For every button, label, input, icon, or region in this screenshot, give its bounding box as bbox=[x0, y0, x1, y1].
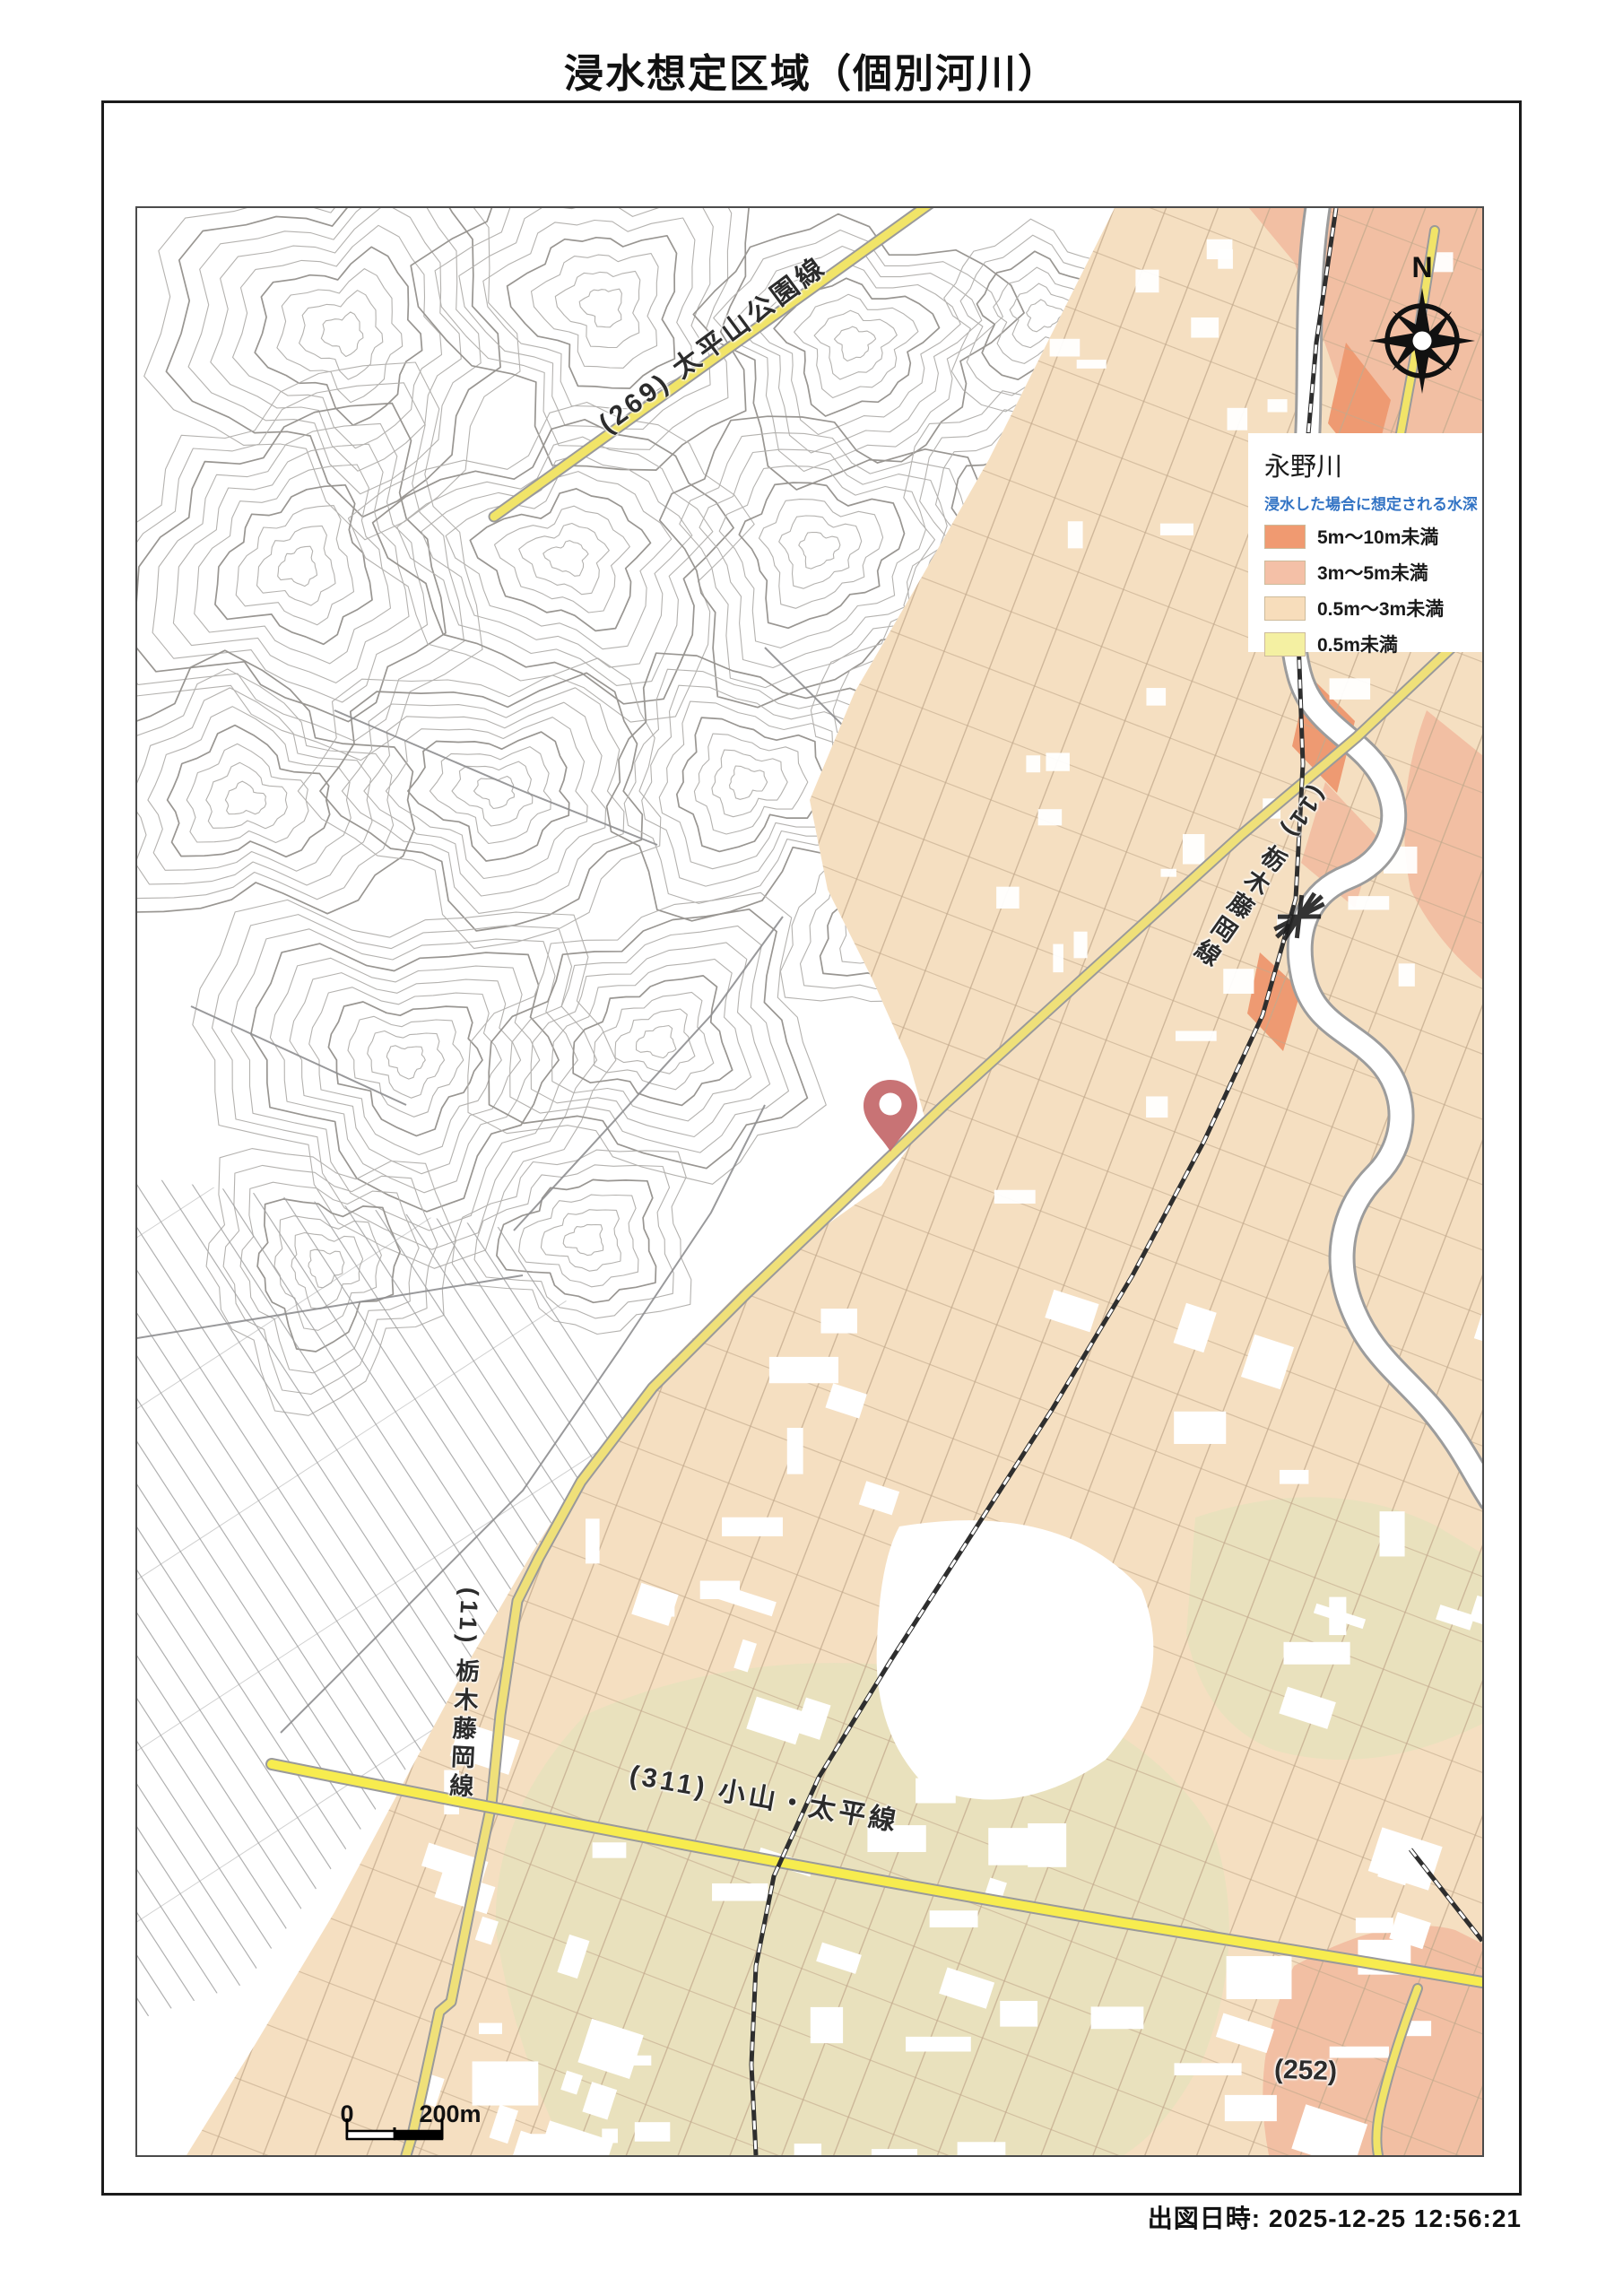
scale-bar: 0 200m bbox=[334, 2099, 495, 2152]
legend-item: 5m～10m未満 bbox=[1264, 523, 1483, 550]
page-title: 浸水想定区域（個別河川） bbox=[0, 41, 1623, 99]
legend-label: 3m～5m未満 bbox=[1317, 559, 1428, 586]
legend-item: 0.5m～3m未満 bbox=[1264, 595, 1483, 622]
compass-rose: N bbox=[1369, 251, 1475, 457]
plot-timestamp: 出図日時: 2025-12-25 12:56:21 bbox=[1148, 2199, 1522, 2235]
map-canvas: (269) 太平山公園線 (11) 栃木藤岡線 (11) 栃木藤岡線 (311)… bbox=[135, 206, 1484, 2157]
legend-swatch-3m-5m bbox=[1264, 561, 1306, 585]
legend-item: 3m～5m未満 bbox=[1264, 559, 1483, 586]
legend-river-name: 永野川 bbox=[1264, 446, 1483, 483]
legend-item: 0.5m未満 bbox=[1264, 631, 1483, 657]
location-pin-icon bbox=[861, 1076, 920, 1155]
legend-swatch-5m-10m bbox=[1264, 525, 1306, 549]
legend-subtitle: 浸水した場合に想定される水深 bbox=[1264, 491, 1483, 514]
compass-north-label: N bbox=[1369, 251, 1475, 284]
legend-label: 5m～10m未満 bbox=[1317, 523, 1438, 550]
legend-swatch-0.5m-3m bbox=[1264, 596, 1306, 621]
legend-label: 0.5m未満 bbox=[1317, 631, 1398, 657]
compass-rose-icon bbox=[1369, 288, 1475, 394]
legend-label: 0.5m～3m未満 bbox=[1317, 595, 1444, 622]
legend-panel: 永野川 浸水した場合に想定される水深 5m～10m未満 3m～5m未満 0.5m… bbox=[1248, 433, 1483, 652]
legend-swatch-under-0.5m bbox=[1264, 632, 1306, 657]
road-label-252: (252) bbox=[1273, 2055, 1337, 2087]
scale-distance-label: 200m bbox=[419, 2100, 481, 2127]
